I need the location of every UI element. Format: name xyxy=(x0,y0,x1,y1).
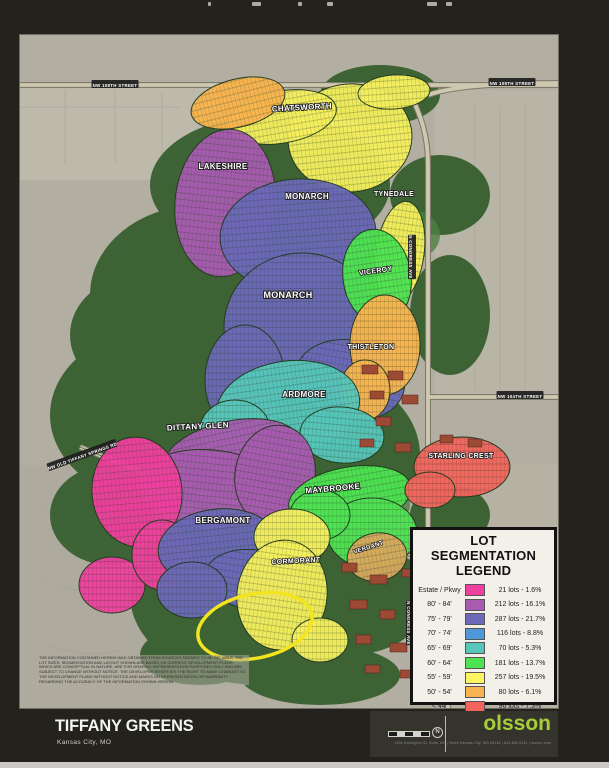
listing-photo-page: NW 108TH STREETNW 108TH STREETNW 104TH S… xyxy=(0,0,609,768)
scale-bar xyxy=(388,731,430,737)
legend-row-value: 70 lots - 5.3% xyxy=(489,645,551,652)
legend-row-label: 75' - 79' xyxy=(416,616,463,623)
legend-row-value: 116 lots - 8.8% xyxy=(489,630,551,637)
neighborhood-label: STARLING CREST xyxy=(428,453,494,460)
panel-divider xyxy=(445,716,446,752)
legend-color-swatch xyxy=(465,628,485,640)
neighborhood-label: MONARCH xyxy=(263,290,312,300)
caption-fragment xyxy=(427,2,437,6)
building-block xyxy=(440,435,453,443)
neighborhood-label: MONARCH xyxy=(285,192,329,201)
legend-row: 70' - 74'116 lots - 8.8% xyxy=(416,627,551,642)
building-block xyxy=(356,635,371,644)
legend-color-swatch xyxy=(465,613,485,625)
caption-fragment xyxy=(252,2,261,6)
svg-text:N CONGRESS AVE: N CONGRESS AVE xyxy=(408,235,413,278)
building-block xyxy=(342,563,357,572)
olsson-logo: olsson xyxy=(483,712,551,736)
development-title: TIFFANY GREENS xyxy=(55,716,193,736)
legend-row-label: 55' - 59' xyxy=(416,674,463,681)
neighborhood-label: THISTLETON xyxy=(348,344,395,351)
legend-row: 55' - 59'257 lots - 19.5% xyxy=(416,670,551,685)
legend-row-value: 287 lots - 21.7% xyxy=(489,616,551,623)
neighborhood-label: LAKESHIRE xyxy=(199,162,248,171)
street-sign: NW 104TH STREET xyxy=(497,391,544,399)
legend-title: LOT SEGMENTATION LEGEND xyxy=(416,534,551,579)
building-block xyxy=(360,439,374,447)
legend-row-label: Estate / Pkwy xyxy=(416,587,463,594)
legend-color-swatch xyxy=(465,657,485,669)
svg-text:NW 108TH STREET: NW 108TH STREET xyxy=(490,81,535,86)
street-sign: NW 108TH STREET xyxy=(92,80,139,88)
street-sign: N CONGRESS AVE xyxy=(408,235,416,279)
legend-row-value: 21 lots - 1.6% xyxy=(489,587,551,594)
neighborhood-label: BERGAMONT xyxy=(195,516,250,525)
legend-row-label: 80' - 84' xyxy=(416,601,463,608)
legend-row-label: 65' - 69' xyxy=(416,645,463,652)
building-block xyxy=(350,600,367,609)
building-block xyxy=(365,665,380,673)
building-block xyxy=(370,391,384,399)
caption-fragment xyxy=(327,2,333,6)
caption-fragment xyxy=(446,2,452,6)
scale-bar-segment xyxy=(389,732,397,736)
scale-bar-segment xyxy=(421,732,429,736)
legend-row-label: < 44' xyxy=(416,703,463,710)
legend-row: 50' - 54'80 lots - 6.1% xyxy=(416,685,551,700)
legend-color-swatch xyxy=(465,672,485,684)
legend-row-value: 80 lots - 6.1% xyxy=(489,689,551,696)
building-block xyxy=(376,417,391,426)
north-arrow-icon: N xyxy=(432,727,443,738)
legend-row: 60' - 64'181 lots - 13.7% xyxy=(416,656,551,671)
building-block xyxy=(362,365,378,374)
scale-bar-segment xyxy=(413,732,421,736)
legend-row-value: 257 lots - 19.5% xyxy=(489,674,551,681)
building-block xyxy=(402,395,418,404)
legend-row-value: 212 lots - 16.1% xyxy=(489,601,551,608)
poster-image: NW 108TH STREETNW 108TH STREETNW 104TH S… xyxy=(20,35,558,708)
logo-panel: N olsson 1301 Burlington St, Suite 100 |… xyxy=(370,711,558,757)
building-block xyxy=(468,439,482,447)
neighborhood-label: TYNEDALE xyxy=(374,191,414,198)
svg-text:NW 108TH STREET: NW 108TH STREET xyxy=(93,83,138,88)
legend-row: Estate / Pkwy21 lots - 1.6% xyxy=(416,583,551,598)
legend-row-label: 50' - 54' xyxy=(416,689,463,696)
legend-row: 75' - 79'287 lots - 21.7% xyxy=(416,612,551,627)
legend-color-swatch xyxy=(465,686,485,698)
scale-bar-segment xyxy=(405,732,413,736)
map-disclaimer: THE INFORMATION CONTAINED HEREIN WAS OBT… xyxy=(37,655,249,685)
development-location: Kansas City, MO xyxy=(57,739,111,746)
legend-color-swatch xyxy=(465,584,485,596)
legend-row: 80' - 84'212 lots - 16.1% xyxy=(416,597,551,612)
svg-text:NW 104TH STREET: NW 104TH STREET xyxy=(498,394,543,399)
legend-rows: Estate / Pkwy21 lots - 1.6%80' - 84'212 … xyxy=(416,583,551,714)
olsson-address: 1301 Burlington St, Suite 100 | North Ka… xyxy=(394,741,551,745)
neighborhood-label: ARDMORE xyxy=(282,390,326,399)
legend-row-label: 60' - 64' xyxy=(416,660,463,667)
caption-fragment xyxy=(208,2,211,6)
photo-bottom-strip xyxy=(0,762,609,768)
legend-color-swatch xyxy=(465,642,485,654)
scale-bar-segment xyxy=(397,732,405,736)
legend-color-swatch xyxy=(465,599,485,611)
building-block xyxy=(388,371,403,380)
building-block xyxy=(395,443,411,452)
legend-row-label: 70' - 74' xyxy=(416,630,463,637)
building-block xyxy=(390,643,407,652)
building-block xyxy=(370,575,387,584)
caption-fragment xyxy=(298,2,302,6)
building-block xyxy=(380,610,395,619)
legend-row-value: 181 lots - 13.7% xyxy=(489,660,551,667)
street-sign: NW 108TH STREET xyxy=(489,78,536,86)
legend-row-value: 96 lots - 7.3% xyxy=(489,703,551,710)
lot-segmentation-legend: LOT SEGMENTATION LEGEND Estate / Pkwy21 … xyxy=(410,527,557,705)
legend-row: 65' - 69'70 lots - 5.3% xyxy=(416,641,551,656)
